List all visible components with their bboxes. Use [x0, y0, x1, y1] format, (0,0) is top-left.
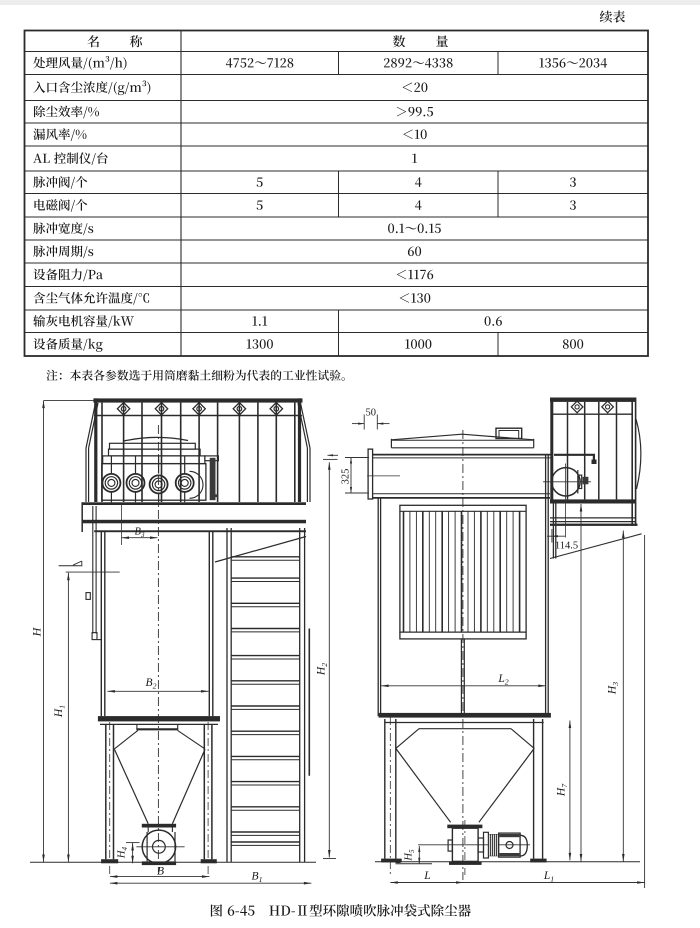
svg-text:B: B: [157, 865, 164, 877]
svg-text:325: 325: [341, 469, 352, 485]
svg-text:H: H: [30, 626, 44, 637]
svg-text:L: L: [423, 870, 430, 882]
svg-text:50: 50: [366, 408, 377, 419]
svg-text:114.5: 114.5: [555, 541, 578, 552]
